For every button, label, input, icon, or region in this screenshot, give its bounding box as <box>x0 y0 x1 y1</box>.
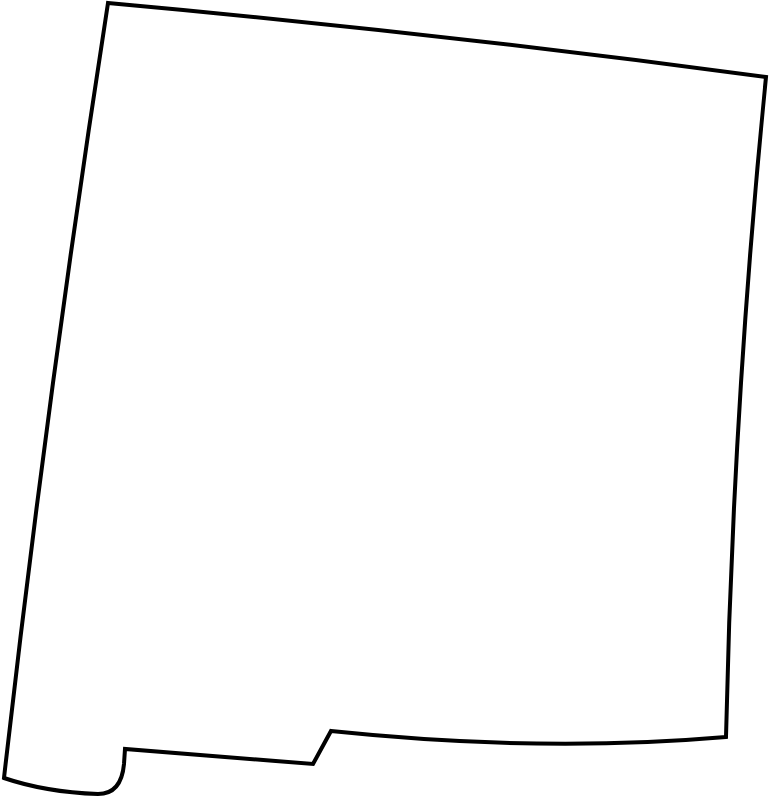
new-mexico-state-border-path <box>4 3 766 794</box>
new-mexico-outline-map <box>0 0 769 800</box>
map-canvas <box>0 0 769 800</box>
